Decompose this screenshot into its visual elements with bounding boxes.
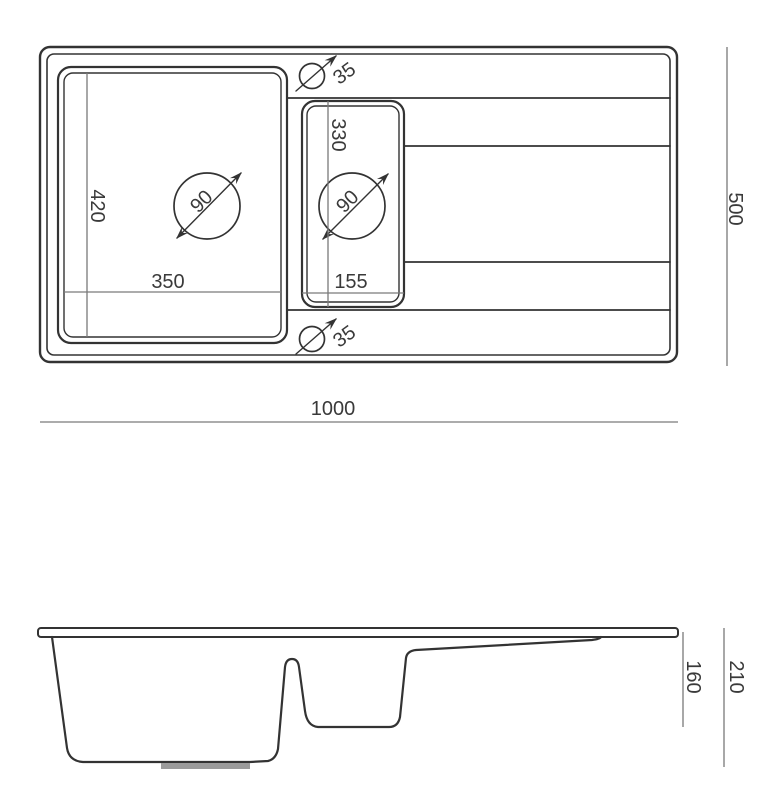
dim-label-160: 160	[682, 660, 704, 693]
top-view-dimension-lines	[40, 47, 727, 422]
dim-label-330: 330	[327, 118, 349, 151]
dim-label-90-main: 90	[186, 186, 217, 217]
side-view-dimension-lines	[683, 628, 724, 767]
dim-label-35-bottom: 35	[329, 321, 360, 352]
sink-technical-drawing: 1000 500 420 350 330 155 90 90 35 35 160…	[0, 0, 762, 800]
side-drain-fitting	[161, 763, 250, 769]
dim-label-1000: 1000	[311, 398, 356, 420]
dim-label-210: 210	[725, 660, 747, 693]
dim-label-350: 350	[151, 271, 184, 293]
drawing-canvas: 1000 500 420 350 330 155 90 90 35 35 160…	[0, 0, 762, 800]
dim-label-35-top: 35	[329, 58, 360, 89]
dim-label-420: 420	[86, 189, 108, 222]
side-rim-bar	[38, 628, 678, 637]
dim-label-500: 500	[724, 192, 746, 225]
side-view	[38, 628, 678, 769]
dim-label-155: 155	[334, 271, 367, 293]
side-profile-contour	[52, 637, 601, 762]
dimension-labels: 1000 500 420 350 330 155 90 90 35 35 160…	[86, 58, 747, 693]
dim-label-90-half: 90	[332, 186, 363, 217]
